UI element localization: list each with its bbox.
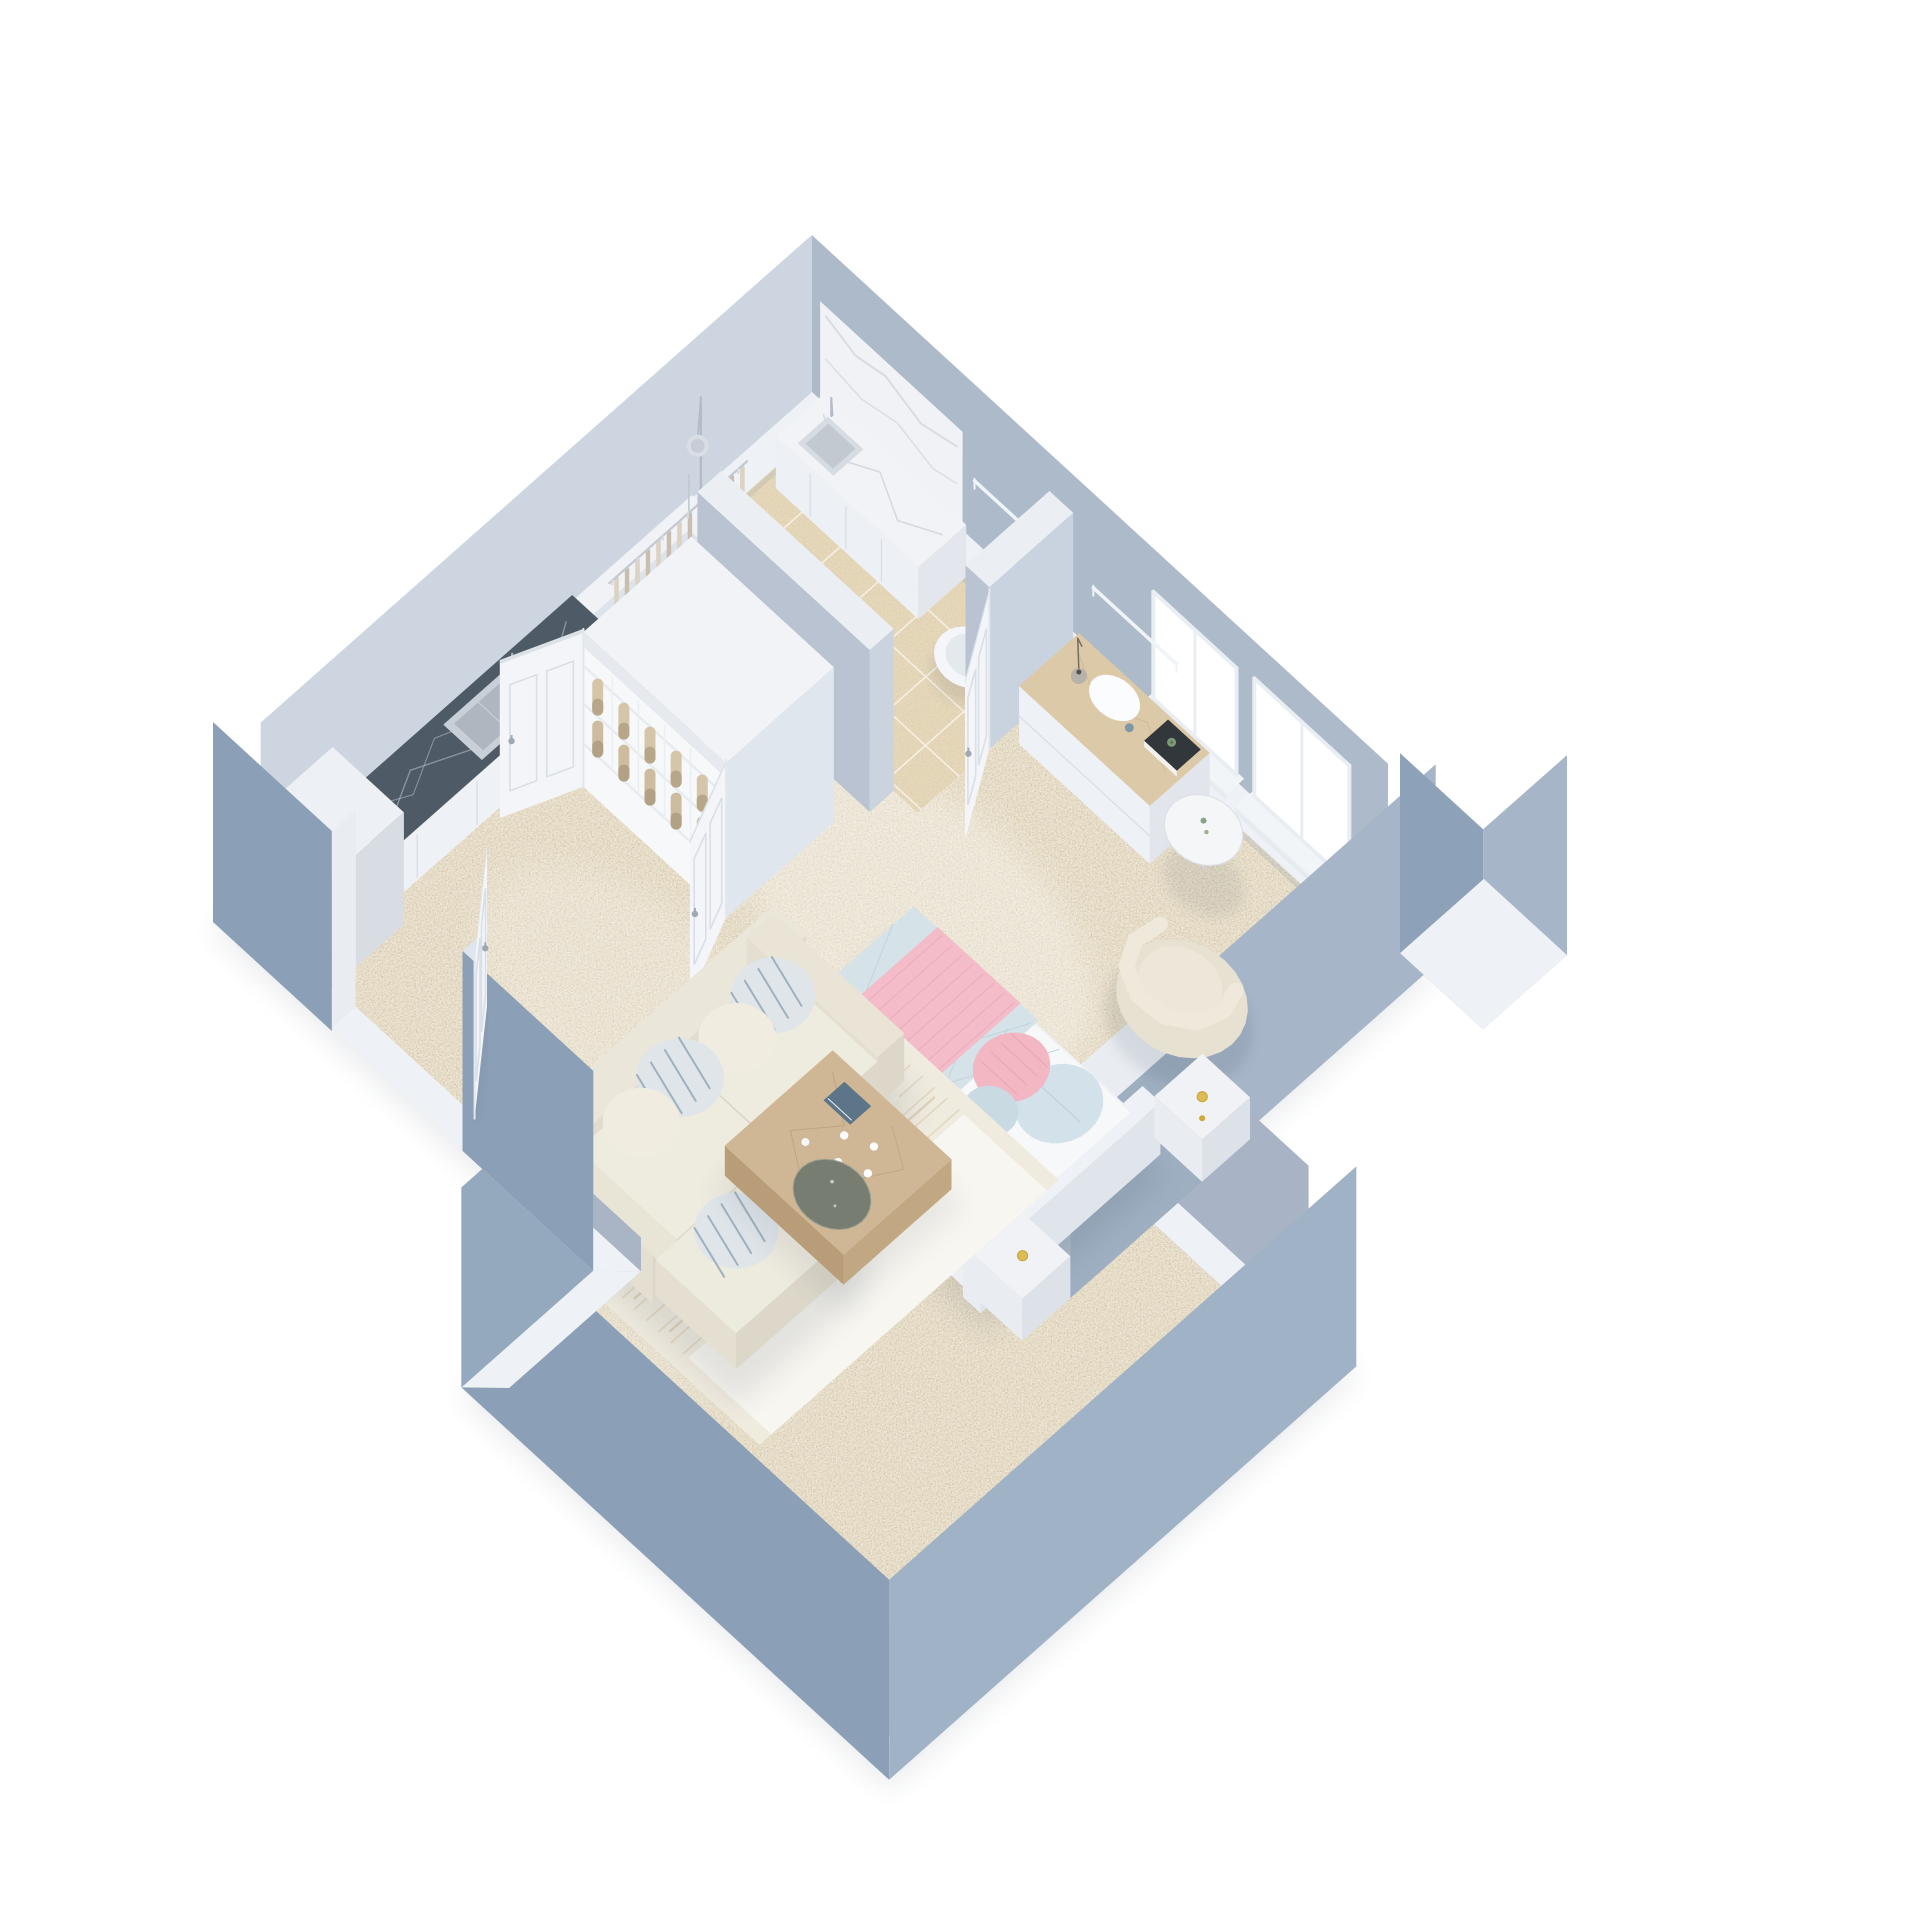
floor-plan-page (0, 0, 1920, 1920)
floor-plan-render (0, 0, 1920, 1920)
